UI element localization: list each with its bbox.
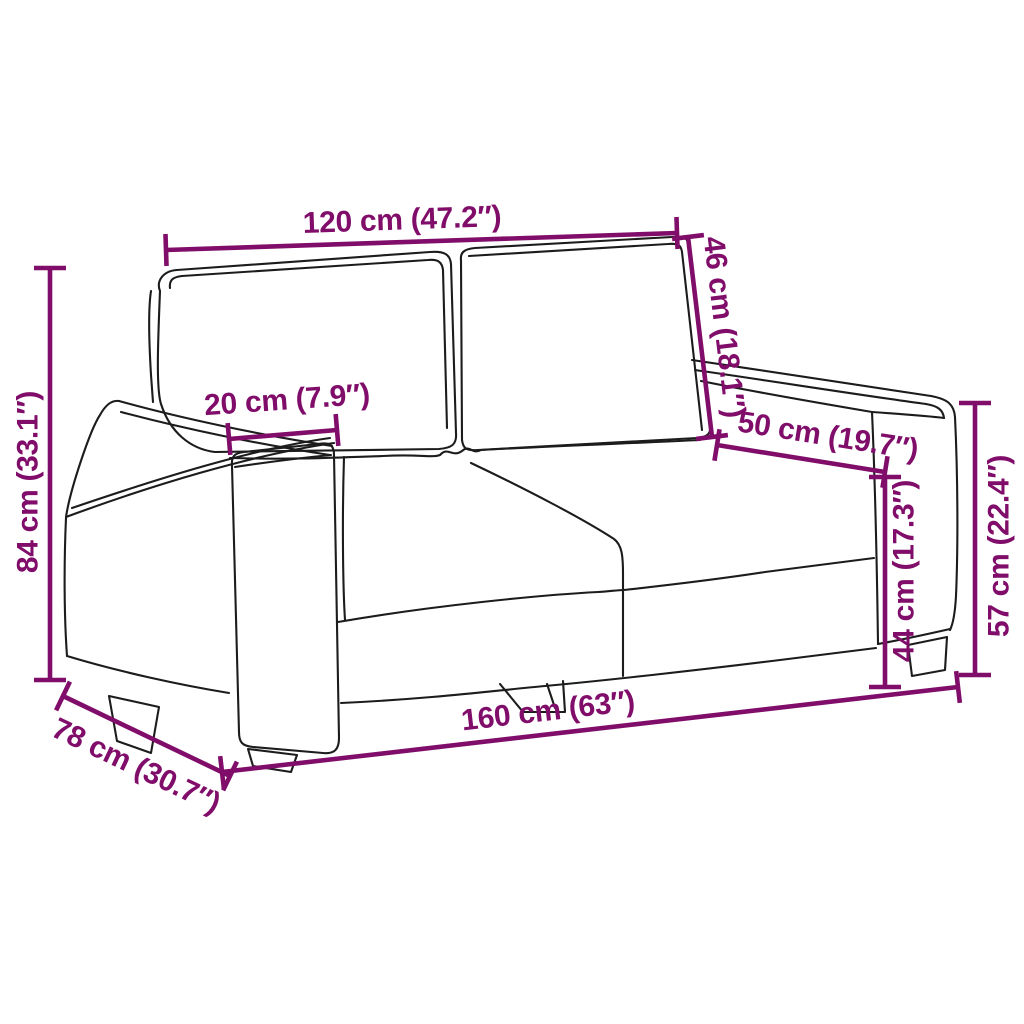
dimension-armrest-width: 20 cm (7.9″) bbox=[203, 378, 371, 455]
backrest-frame-left bbox=[149, 291, 153, 402]
dimension-label-seat-height: 44 cm (17.3″) bbox=[888, 480, 921, 662]
dimension-back-width: 120 cm (47.2″) bbox=[165, 200, 677, 266]
dimension-end-tick bbox=[676, 217, 677, 249]
dimension-armrest-height: 57 cm (22.4″) bbox=[959, 403, 1016, 675]
dimension-label-overall-height: 84 cm (33.1″) bbox=[12, 391, 45, 573]
left-arm-panel-piping bbox=[235, 455, 331, 467]
dimension-end-tick bbox=[228, 423, 231, 455]
dimension-annotations: 120 cm (47.2″)46 cm (18.1″)50 cm (19.7″)… bbox=[12, 200, 1016, 820]
dimension-end-tick bbox=[165, 234, 166, 266]
left-arm-side-left-edge bbox=[65, 518, 67, 656]
dimension-overall-width: 160 cm (63″) bbox=[220, 671, 960, 788]
left-arm-top-outer-edge bbox=[66, 443, 334, 517]
seat-left-edge bbox=[343, 457, 345, 620]
dimension-overall-height: 84 cm (33.1″) bbox=[12, 268, 67, 680]
left-arm-side-bottom-edge bbox=[67, 656, 229, 693]
dimension-end-tick bbox=[696, 435, 728, 439]
back-cushion-right-piping bbox=[469, 244, 702, 430]
dimension-label-overall-depth: 78 cm (30.7″) bbox=[47, 712, 226, 821]
left-arm-front-panel bbox=[232, 443, 339, 753]
left-arm-back-cap bbox=[66, 401, 119, 517]
dimension-end-tick bbox=[714, 429, 719, 461]
seat-cushion-seam bbox=[471, 463, 623, 676]
sofa-drawing bbox=[65, 237, 958, 772]
dimension-label-seat-depth: 50 cm (19.7″) bbox=[735, 405, 920, 466]
dimension-end-tick bbox=[336, 414, 339, 446]
right-arm-outer-edge bbox=[950, 417, 957, 630]
seat-front-edge bbox=[338, 558, 874, 622]
sofa-dimension-diagram: 120 cm (47.2″)46 cm (18.1″)50 cm (19.7″)… bbox=[0, 0, 1024, 1024]
dimension-label-armrest-height: 57 cm (22.4″) bbox=[983, 455, 1016, 637]
dimension-label-back-width: 120 cm (47.2″) bbox=[302, 200, 502, 240]
dimension-label-armrest-width: 20 cm (7.9″) bbox=[203, 378, 371, 422]
back-cushion-right bbox=[461, 237, 711, 450]
right-arm-face-top-edge bbox=[872, 412, 944, 418]
